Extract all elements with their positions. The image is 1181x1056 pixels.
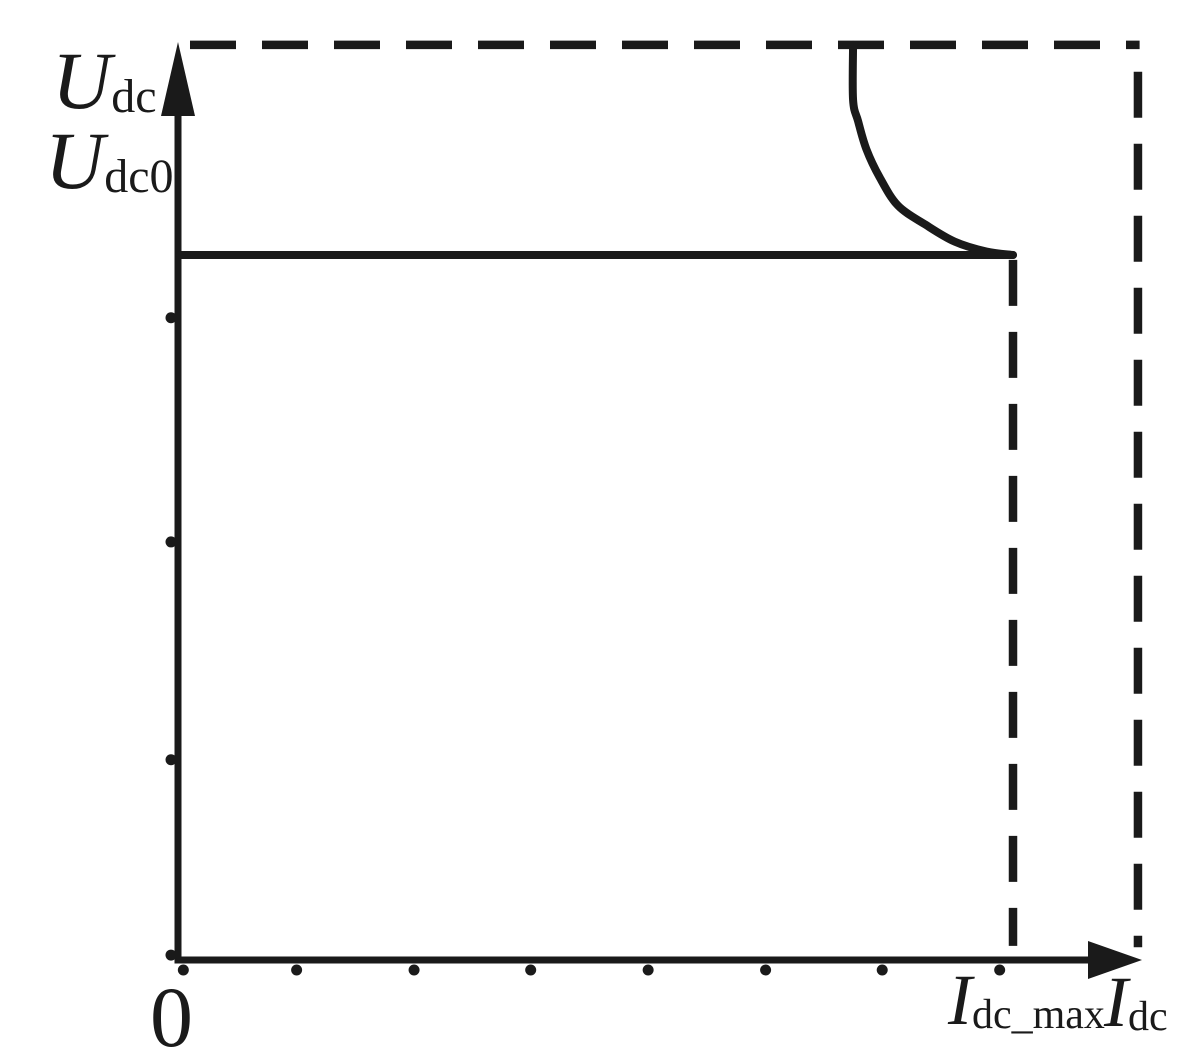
current-limit-curve — [853, 45, 1013, 255]
no-load-voltage-label: Udc0 — [45, 120, 174, 202]
y-axis-tick-1 — [166, 754, 177, 765]
vi-characteristic-figure: Udc Udc0 0 Idc_max Idc — [0, 0, 1181, 1056]
y-axis-variable-sub: dc — [111, 70, 156, 123]
x-axis-variable-base: I — [1104, 962, 1128, 1042]
y-axis-variable-base: U — [52, 35, 111, 126]
plot-canvas — [0, 0, 1181, 1056]
max-current-label: Idc_max — [948, 964, 1105, 1036]
x-axis-tick-4 — [643, 965, 654, 976]
x-axis-variable-sub: dc — [1128, 994, 1168, 1040]
x-axis-tick-3 — [525, 965, 536, 976]
x-axis-tick-6 — [877, 965, 888, 976]
no-load-voltage-base: U — [45, 115, 104, 206]
y-axis-tick-2 — [166, 536, 177, 547]
max-current-sub: dc_max — [972, 992, 1105, 1038]
no-load-voltage-sub: dc0 — [104, 150, 173, 203]
y-axis-arrowhead-icon — [161, 42, 195, 116]
y-axis-tick-3 — [166, 312, 177, 323]
max-current-base: I — [948, 960, 972, 1040]
x-axis-variable-label: Idc — [1104, 966, 1168, 1038]
x-axis-tick-1 — [291, 965, 302, 976]
origin-label: 0 — [150, 974, 193, 1056]
x-axis-tick-5 — [760, 965, 771, 976]
y-axis-tick-0 — [166, 950, 177, 961]
x-axis-tick-2 — [409, 965, 420, 976]
y-axis-variable-label: Udc — [52, 40, 157, 122]
